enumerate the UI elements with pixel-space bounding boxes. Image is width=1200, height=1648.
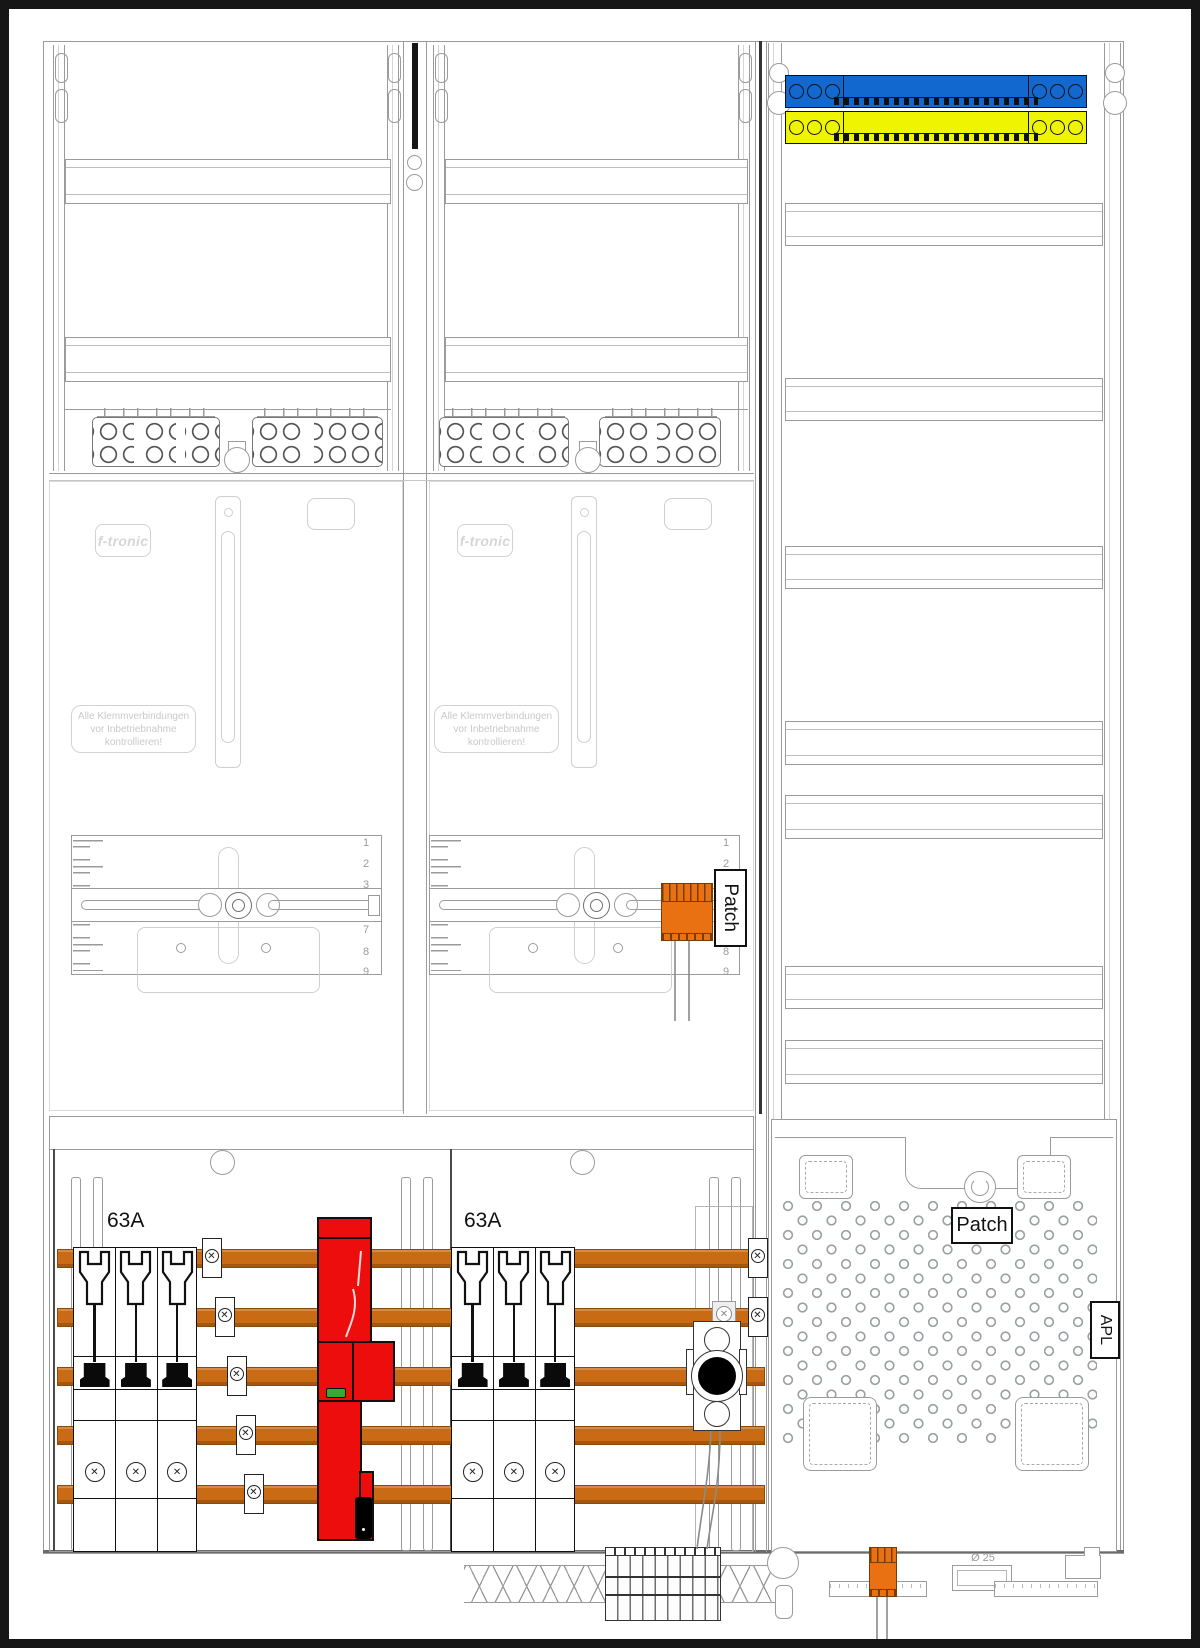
terminal-block <box>439 417 569 467</box>
sls-switch-top <box>317 1217 372 1343</box>
fuse-stem <box>513 1304 515 1362</box>
mount-hole <box>210 1150 235 1175</box>
plate-logo-swirl <box>971 1178 989 1196</box>
terminal-teeth <box>257 408 378 417</box>
floor-box-step <box>1084 1547 1100 1556</box>
divider-left-middle <box>403 41 404 1114</box>
slider-end <box>556 893 580 917</box>
sls-cap-line <box>319 1237 370 1239</box>
left-fuse-switch-63a <box>73 1247 197 1552</box>
rail-slot <box>55 89 68 123</box>
fuse-cap <box>80 1363 110 1387</box>
meter-base-plate <box>137 927 320 993</box>
din-rail-row <box>785 546 1103 589</box>
patch-rail-label-text: Patch <box>720 884 742 933</box>
floor-terminal-connector <box>869 1547 897 1597</box>
din-rail-row <box>785 1040 1103 1084</box>
rail-slot <box>388 53 401 83</box>
scale-number: 8 <box>723 946 739 964</box>
slider-slot <box>439 900 569 910</box>
terminal-block <box>599 417 721 467</box>
phillips-screw-icon <box>218 1308 232 1322</box>
body-line <box>452 1389 574 1390</box>
mount-hole <box>570 1150 595 1175</box>
pole-divider <box>115 1248 116 1551</box>
fuse-grip-icon <box>456 1250 489 1306</box>
phillips-screw-icon <box>126 1462 146 1482</box>
toggle-dot <box>362 1528 365 1531</box>
phillips-screw-icon <box>751 1308 765 1322</box>
phillips-screw-icon <box>504 1462 524 1482</box>
fuse-stem <box>554 1304 556 1362</box>
meter-cabinet-diagram: f-tronic Alle Klemmverbindungen vor Inbe… <box>0 0 1200 1648</box>
rail-hole <box>1105 63 1125 83</box>
slider-stop <box>368 895 380 916</box>
din-rail-row <box>785 378 1103 421</box>
terminal-strip <box>605 1555 721 1621</box>
meter-slot-hole <box>580 508 589 517</box>
sls-switch-middle <box>317 1341 395 1402</box>
plate-opening <box>799 1155 853 1199</box>
meter-base-plate <box>489 927 672 993</box>
sls-status-indicator <box>326 1388 346 1398</box>
brand-text: f-tronic <box>98 533 149 549</box>
fuse-stem <box>471 1304 473 1362</box>
middle-fuse-switch-63a <box>451 1247 575 1552</box>
fuse-stem <box>176 1304 178 1362</box>
rail-slot <box>435 53 448 83</box>
body-line <box>452 1420 574 1421</box>
plate-hole <box>613 943 623 953</box>
scale-number: 1 <box>363 837 379 855</box>
fuse-stem <box>135 1304 137 1362</box>
knockout-hole <box>224 447 250 473</box>
body-line <box>452 1498 574 1499</box>
strip-line <box>606 1594 720 1596</box>
divider-hole <box>407 155 422 170</box>
terminal-block <box>92 417 220 467</box>
section-line <box>49 1149 754 1150</box>
terminal-block <box>252 417 383 467</box>
body-line <box>74 1498 196 1499</box>
fuse-cap <box>540 1363 570 1387</box>
feed-cable-entry <box>691 1350 743 1402</box>
brand-logo: f-tronic <box>457 524 513 557</box>
warning-line: vor Inbetriebnahme <box>435 723 558 736</box>
fuse-grip-icon <box>78 1250 111 1306</box>
terminal-teeth <box>605 408 717 417</box>
floor-hinge-hole <box>767 1547 799 1579</box>
busbar-connector <box>244 1474 264 1514</box>
scale-number: 9 <box>363 966 379 984</box>
slider-slot <box>81 900 211 910</box>
din-rail-row <box>785 966 1103 1009</box>
pole-divider <box>535 1248 536 1551</box>
phillips-screw-icon <box>205 1249 219 1263</box>
patch-terminal-connector <box>661 883 713 941</box>
warning-line: kontrollieren! <box>435 736 558 749</box>
plate-opening-large <box>803 1397 877 1471</box>
body-line <box>74 1389 196 1390</box>
slider-slot <box>268 900 374 910</box>
section-line <box>49 473 754 474</box>
opening-dash <box>1023 1161 1065 1193</box>
fuse-stem <box>93 1304 95 1362</box>
floor-connector-wires <box>877 1597 887 1639</box>
patch-field-label-text: Patch <box>956 1214 1007 1237</box>
din-rail-row <box>785 795 1103 839</box>
din-rail-row <box>65 337 391 382</box>
apl-label: APL <box>1090 1301 1120 1359</box>
sls-divider <box>352 1343 354 1400</box>
opening-dash <box>1021 1403 1083 1465</box>
busbar-terminal-strip <box>834 133 1038 141</box>
fuse-cap <box>162 1363 192 1387</box>
terminal-teeth <box>97 408 215 417</box>
apl-label-text: APL <box>1096 1315 1114 1345</box>
terminal-teeth <box>445 408 565 417</box>
fuse-grip-icon <box>539 1250 572 1306</box>
din-rail-row <box>785 721 1103 765</box>
busbar-connector <box>202 1238 222 1278</box>
din-rail-row <box>445 159 748 204</box>
strip-line <box>606 1576 720 1578</box>
phillips-screw-icon <box>463 1462 483 1482</box>
n-busbar-blue <box>785 75 1087 108</box>
connector-feet <box>870 1589 896 1596</box>
meter-slot-inner <box>221 531 235 743</box>
connector-clamps <box>870 1548 896 1563</box>
divider-middle-right-core <box>759 41 762 1114</box>
pole-divider <box>157 1248 158 1551</box>
sls-toggle-handle[interactable] <box>355 1497 372 1539</box>
opening-dash <box>805 1161 847 1193</box>
warning-line: Alle Klemmverbindungen <box>72 710 195 723</box>
fuse-cap <box>499 1363 529 1387</box>
phillips-screw-icon <box>247 1485 261 1499</box>
warning-line: vor Inbetriebnahme <box>72 723 195 736</box>
phillips-screw-icon <box>230 1367 244 1381</box>
phillips-screw-icon <box>545 1462 565 1482</box>
warning-line: Alle Klemmverbindungen <box>435 710 558 723</box>
rail-slot <box>388 89 401 123</box>
din-rail-row <box>445 337 748 382</box>
scale-number: 8 <box>363 946 379 964</box>
meter-window <box>307 498 355 530</box>
brand-text: f-tronic <box>460 533 511 549</box>
pole-divider <box>493 1248 494 1551</box>
rail-slot <box>435 89 448 123</box>
floor-rail <box>994 1581 1098 1597</box>
meter-window <box>664 498 712 530</box>
brand-logo: f-tronic <box>95 524 151 557</box>
pe-busbar-yellow <box>785 111 1087 144</box>
phillips-screw-icon <box>85 1462 105 1482</box>
middle-breaker-rating: 63A <box>464 1209 501 1233</box>
knockout-hole <box>575 447 601 473</box>
divider-left-middle-2 <box>426 41 427 1114</box>
busbar-connector <box>215 1297 235 1337</box>
meter-slot-inner <box>577 531 591 743</box>
edge-line <box>53 1149 55 1551</box>
slider-screw <box>583 892 610 919</box>
slider-screw <box>225 892 252 919</box>
rail-slot <box>55 53 68 83</box>
scale-number: 1 <box>723 837 739 855</box>
din-rail-row <box>65 159 391 204</box>
meter-slot-hole <box>224 508 233 517</box>
rail-slot <box>739 89 752 123</box>
body-line <box>74 1356 196 1357</box>
conduit-size-label: Ø 25 <box>954 1552 1012 1564</box>
left-breaker-rating: 63A <box>107 1209 144 1233</box>
slider-end <box>198 893 222 917</box>
connector-feet <box>662 933 712 940</box>
fuse-cap <box>458 1363 488 1387</box>
busbar-connector <box>748 1297 768 1337</box>
plate-top-line <box>1051 1137 1113 1138</box>
floor-slot <box>775 1585 793 1619</box>
phillips-screw-icon <box>716 1306 732 1322</box>
plate-hole <box>176 943 186 953</box>
phillips-screw-icon <box>239 1426 253 1440</box>
plate-hole <box>261 943 271 953</box>
phillips-screw-icon <box>167 1462 187 1482</box>
scale-number: 2 <box>363 858 379 876</box>
patch-rail-label: Patch <box>714 869 747 947</box>
plate-opening <box>1017 1155 1071 1199</box>
slider-rail <box>71 888 382 922</box>
connector-clamps <box>662 884 712 902</box>
phillips-screw-icon <box>751 1249 765 1263</box>
scale-number: 9 <box>723 966 739 984</box>
divider-hole <box>406 174 423 191</box>
din-rail-row <box>785 203 1103 246</box>
warning-note: Alle Klemmverbindungen vor Inbetriebnahm… <box>71 705 196 753</box>
warning-note: Alle Klemmverbindungen vor Inbetriebnahm… <box>434 705 559 753</box>
busbar-connector <box>236 1415 256 1455</box>
busbar-terminal-strip <box>834 97 1038 105</box>
rail-hole <box>1103 91 1127 115</box>
patch-field-label: Patch <box>951 1207 1013 1244</box>
plate-top-line <box>775 1137 905 1138</box>
scale-number: 7 <box>363 924 379 942</box>
floor-box <box>1065 1555 1101 1579</box>
warning-line: kontrollieren! <box>72 736 195 749</box>
body-line <box>74 1420 196 1421</box>
feed-cable <box>698 1357 736 1395</box>
feed-clamp-hole <box>704 1401 730 1427</box>
busbar-connector <box>227 1356 247 1396</box>
fuse-grip-icon <box>119 1250 152 1306</box>
opening-dash <box>809 1403 871 1465</box>
rail-slot <box>739 53 752 83</box>
fuse-grip-icon <box>161 1250 194 1306</box>
divider-top-bar-left <box>412 43 418 149</box>
plate-hole <box>528 943 538 953</box>
fuse-cap <box>121 1363 151 1387</box>
fuse-grip-icon <box>497 1250 530 1306</box>
body-line <box>452 1356 574 1357</box>
busbar-connector <box>748 1238 768 1278</box>
plate-opening-large <box>1015 1397 1089 1471</box>
